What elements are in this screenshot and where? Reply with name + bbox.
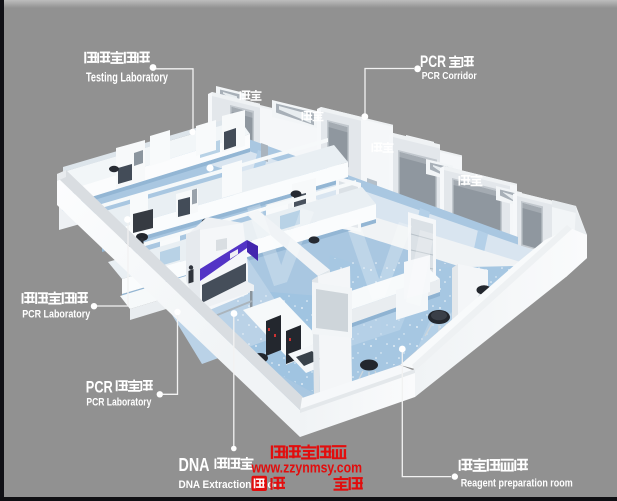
svg-text:Reagent preparation room: Reagent preparation room bbox=[461, 478, 573, 490]
svg-text:DNA: DNA bbox=[179, 455, 210, 475]
svg-text:Testing Laboratory: Testing Laboratory bbox=[86, 71, 168, 85]
svg-text:PCR: PCR bbox=[86, 378, 113, 397]
svg-text:www.zzynmsy.com: www.zzynmsy.com bbox=[251, 461, 362, 477]
svg-text:PCR Corridor: PCR Corridor bbox=[422, 70, 477, 82]
svg-text:DNA Extraction Room: DNA Extraction Room bbox=[179, 479, 283, 491]
svg-text:PCR Laboratory: PCR Laboratory bbox=[22, 309, 91, 321]
svg-text:PCR Laboratory: PCR Laboratory bbox=[86, 397, 152, 409]
svg-text:PCR: PCR bbox=[420, 53, 446, 71]
